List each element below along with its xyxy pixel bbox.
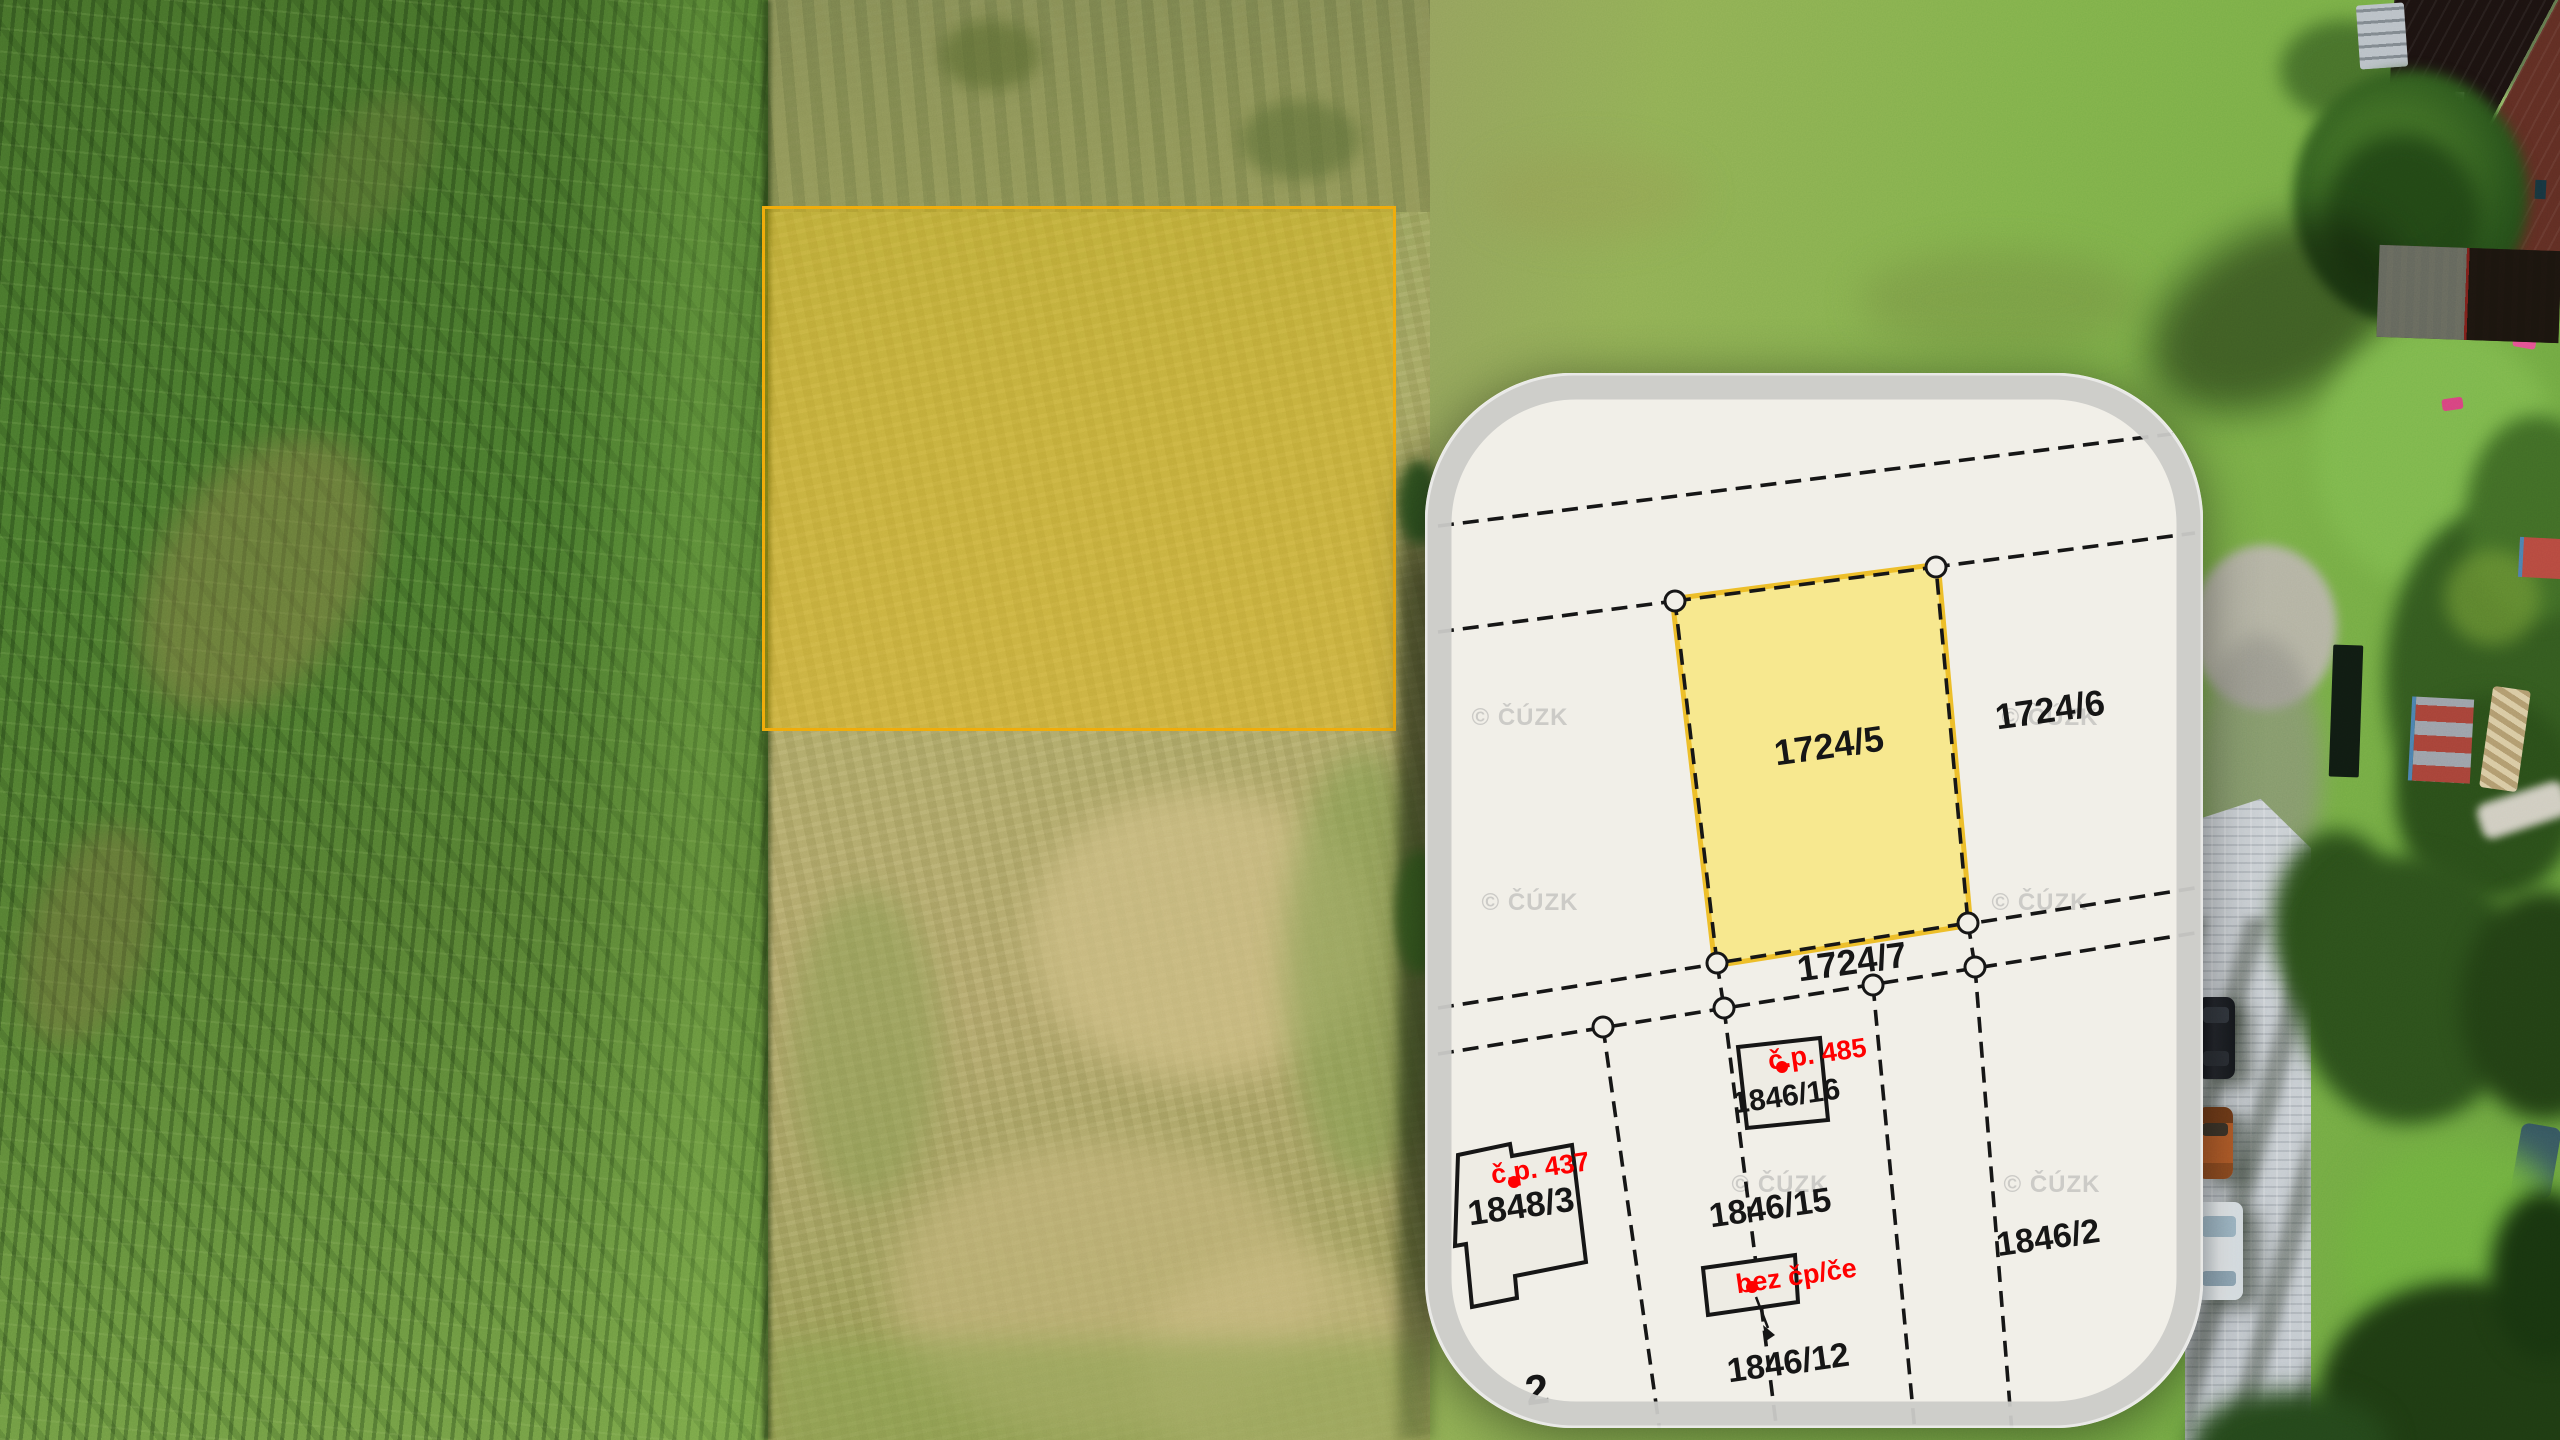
roof-skylight — [2535, 180, 2547, 200]
car-windshield — [2202, 1123, 2227, 1136]
patio-pergola — [2376, 245, 2560, 343]
green-meadow-bottom — [770, 1340, 1430, 1440]
cuzk-watermark: © ČÚZK — [1471, 703, 1568, 731]
car-windshield — [2202, 1216, 2236, 1238]
car-rear-window — [2203, 1051, 2230, 1066]
grass-mottle — [1480, 150, 1700, 240]
aerial-photo: © ČÚZK © ČÚZK © ČÚZK © ČÚZK © ČÚZK © ČÚZ… — [0, 0, 2560, 1440]
car-windshield — [2203, 1007, 2230, 1023]
garden-shed — [2329, 645, 2364, 778]
green-grass-streak — [790, 890, 940, 1200]
cuzk-watermark: © ČÚZK — [2003, 1170, 2100, 1198]
highlighted-parcel-overlay — [762, 206, 1396, 731]
car-rear-window — [2202, 1271, 2236, 1287]
corn-field-bright-band — [560, 0, 768, 1440]
dark-scrub-fleck — [940, 20, 1040, 90]
dark-scrub-fleck — [1240, 100, 1360, 180]
cadastral-inset-map: © ČÚZK © ČÚZK © ČÚZK © ČÚZK © ČÚZK © ČÚZ… — [1425, 373, 2203, 1428]
utility-trailer — [2356, 2, 2408, 69]
grass-mottle — [1860, 250, 2140, 350]
red-roof-edge — [2518, 537, 2560, 579]
red-roof-structure — [2408, 696, 2474, 783]
cuzk-watermark: © ČÚZK — [1481, 888, 1578, 916]
